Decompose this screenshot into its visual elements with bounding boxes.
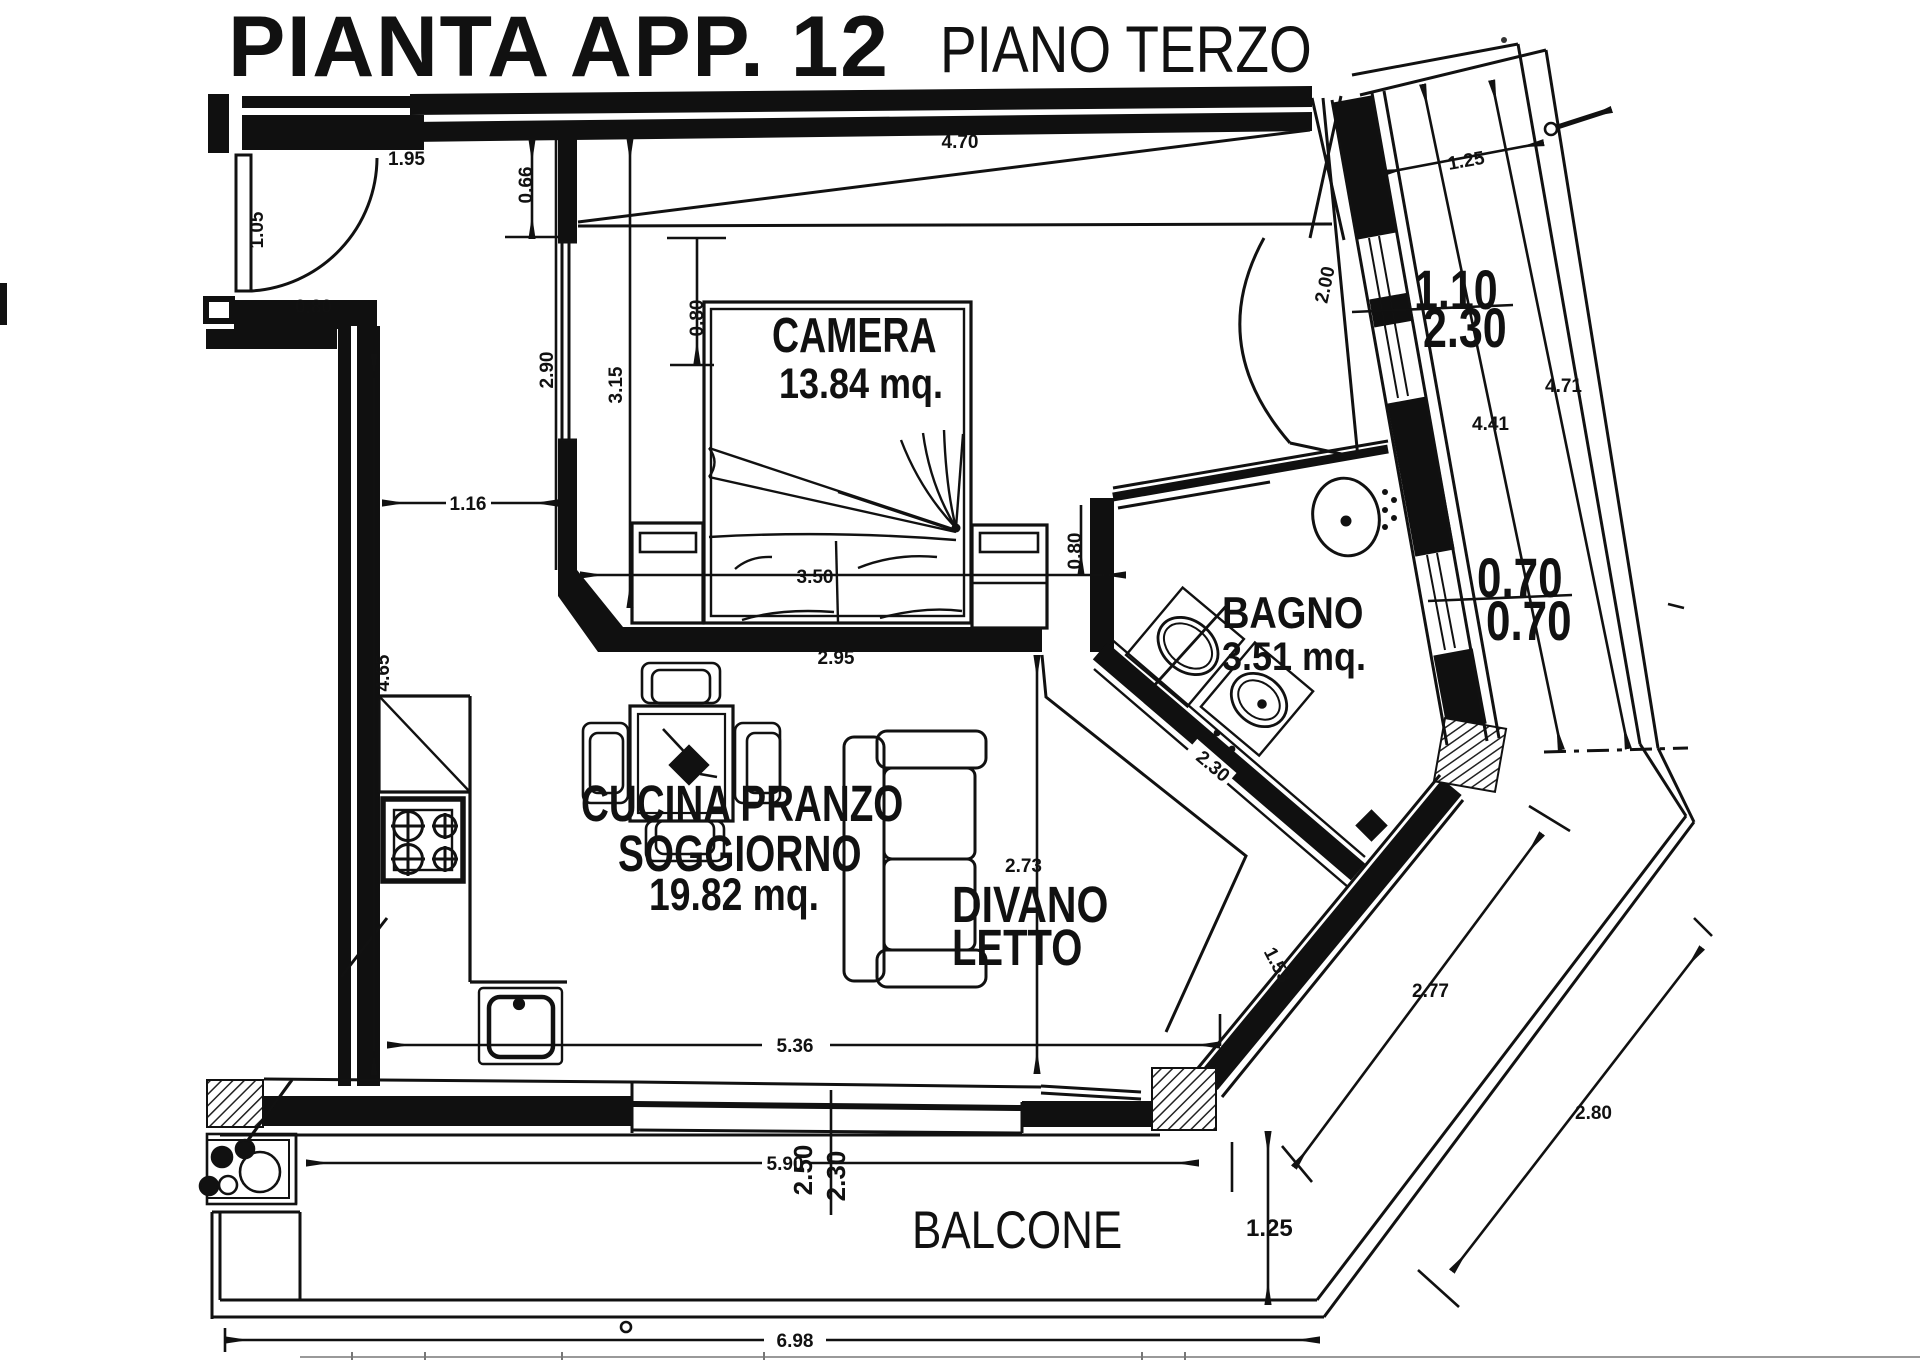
svg-text:1.05: 1.05 xyxy=(247,211,268,248)
svg-text:4.65: 4.65 xyxy=(373,654,394,691)
svg-text:0.70: 0.70 xyxy=(1486,589,1572,652)
svg-text:2.90: 2.90 xyxy=(537,352,558,389)
svg-text:PIANO TERZO: PIANO TERZO xyxy=(940,12,1312,86)
svg-text:0.80: 0.80 xyxy=(687,300,708,337)
svg-text:1.16: 1.16 xyxy=(450,494,487,515)
svg-text:13.84 mq.: 13.84 mq. xyxy=(779,360,943,407)
svg-text:0.80: 0.80 xyxy=(1065,533,1086,570)
svg-text:BAGNO: BAGNO xyxy=(1222,587,1363,638)
svg-text:2.80: 2.80 xyxy=(1575,1103,1612,1124)
svg-text:2.73: 2.73 xyxy=(1005,856,1042,877)
svg-text:19.82 mq.: 19.82 mq. xyxy=(649,868,819,919)
svg-text:6.98: 6.98 xyxy=(777,1331,814,1352)
svg-text:LETTO: LETTO xyxy=(952,918,1082,976)
svg-text:3.15: 3.15 xyxy=(606,366,627,403)
svg-text:CAMERA: CAMERA xyxy=(772,309,937,363)
svg-text:2.30: 2.30 xyxy=(1423,297,1507,360)
svg-text:0.66: 0.66 xyxy=(516,167,537,204)
svg-text:2.30: 2.30 xyxy=(821,1151,851,1202)
svg-text:CUCINA PRANZO: CUCINA PRANZO xyxy=(581,775,903,832)
svg-text:4.70: 4.70 xyxy=(942,132,979,153)
svg-text:4.71: 4.71 xyxy=(1545,376,1582,397)
svg-text:1.25: 1.25 xyxy=(1246,1215,1293,1242)
svg-text:0.80: 0.80 xyxy=(295,297,332,318)
svg-text:PIANTA APP. 12: PIANTA APP. 12 xyxy=(228,0,889,95)
svg-text:2.95: 2.95 xyxy=(818,648,855,669)
svg-text:5.36: 5.36 xyxy=(777,1036,814,1057)
svg-text:3.50: 3.50 xyxy=(797,567,834,588)
svg-text:1.95: 1.95 xyxy=(388,149,425,170)
svg-text:4.41: 4.41 xyxy=(1472,414,1509,435)
svg-text:2.50: 2.50 xyxy=(788,1145,818,1196)
svg-text:3.51 mq.: 3.51 mq. xyxy=(1222,635,1366,679)
svg-text:BALCONE: BALCONE xyxy=(912,1201,1122,1260)
svg-text:2.77: 2.77 xyxy=(1412,981,1449,1002)
